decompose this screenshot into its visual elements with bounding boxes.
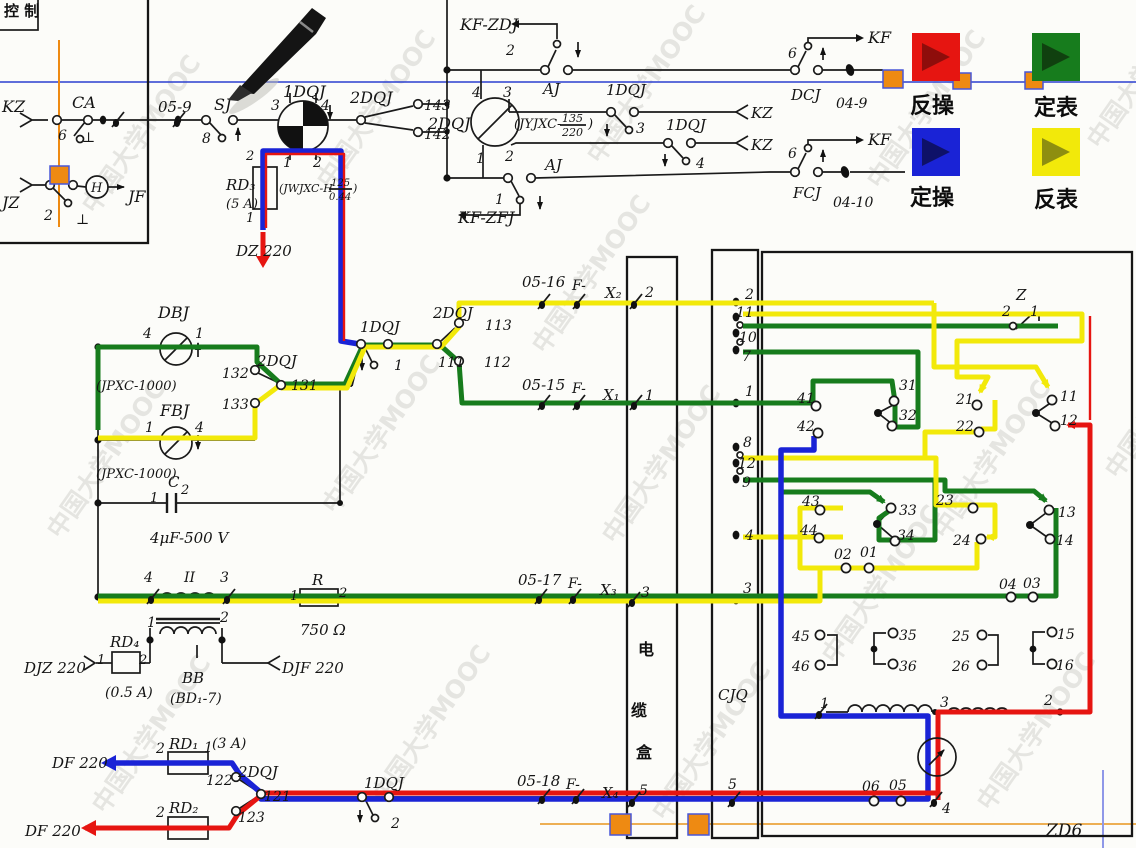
f-3-label: F-	[567, 576, 582, 592]
f-1-label: F-	[571, 278, 586, 294]
k41-label: 41	[796, 391, 815, 407]
c05-9-label: 05-9	[158, 98, 192, 116]
kz-b1-label: KZ	[750, 104, 773, 122]
kf-1-label: KF	[867, 28, 892, 47]
fcj-6-label: 6	[788, 146, 797, 162]
tr-1-label: 1	[147, 615, 156, 631]
cjq-2-label: 2	[744, 287, 754, 303]
watermark-text: 中国大学MOOC	[41, 375, 171, 544]
fbj-1-label: 1	[145, 420, 154, 436]
h-coil-label: H	[90, 181, 103, 196]
sj-8-label: 8	[202, 131, 211, 147]
watermark-text: 中国大学MOOC	[1099, 315, 1136, 484]
dbj-1-label: 1	[195, 326, 204, 342]
dqj1-model-num: 125	[331, 178, 350, 189]
zd6-label: ZD6	[1045, 821, 1082, 841]
legend-item-dingbiao: 定表	[1032, 33, 1080, 121]
dcj-label: DCJ	[790, 86, 822, 104]
rd4-1-label: 1	[97, 653, 105, 668]
k11-label: 11	[1060, 389, 1078, 405]
kz-label: KZ	[1, 97, 26, 116]
cap-c-label: C	[168, 473, 180, 491]
r-ohm-label: 750 Ω	[300, 621, 346, 639]
dqj1-b3-label: 3	[636, 121, 645, 137]
kongzhi-label: 控 制	[4, 2, 39, 20]
kz-b2-label: KZ	[750, 136, 773, 154]
k03-label: 03	[1023, 576, 1041, 592]
aj-top-label: AJ	[541, 80, 561, 98]
cjq-9-label: 9	[742, 475, 751, 491]
cjq-label: CJQ	[718, 686, 748, 704]
cjq-5-label: 5	[728, 777, 737, 793]
tr-2-label: 2	[219, 610, 229, 626]
dbj-4-label: 4	[142, 326, 152, 342]
k26-label: 26	[951, 659, 970, 675]
dqj1-model-prefix: (JWJXC-H	[279, 182, 333, 195]
k24-label: 24	[952, 533, 971, 549]
dqj1-model-post: )	[352, 182, 357, 195]
operation-legend: 反操 定表 定操 反表	[910, 33, 1080, 213]
rd3-p1-label: 1	[246, 211, 254, 226]
c05-17-label: 05-17	[518, 571, 562, 589]
cjq-8-label: 8	[743, 435, 752, 451]
dqj2-model-den: 220	[561, 126, 583, 139]
k25-label: 25	[951, 629, 970, 645]
bb-label: BB	[181, 669, 204, 687]
trace-yellow-22dn	[925, 432, 979, 458]
k42-label: 42	[796, 419, 815, 435]
rd3-label: RD₃	[225, 176, 255, 194]
dcj-6-label: 6	[788, 46, 797, 62]
cap-1-label: 1	[150, 491, 158, 506]
x3-3-label: 3	[641, 585, 650, 601]
k22-label: 22	[955, 419, 974, 435]
k06-label: 06	[862, 779, 880, 795]
orange-marker-bottom-b	[688, 814, 709, 835]
watermark-text: 中国大学MOOC	[316, 350, 446, 519]
fbj-label: FBJ	[159, 401, 191, 420]
trace-green-33a	[782, 492, 884, 502]
scanned-circuit-page: 中国大学MOOC 中国大学MOOC 中国大学MOOC 中国大学MOOC 中国大学…	[0, 0, 1136, 848]
jpxc-1-label: (JPXC-1000)	[96, 379, 177, 394]
c05-18-label: 05-18	[517, 772, 560, 790]
circuit-diagram: 中国大学MOOC 中国大学MOOC 中国大学MOOC 中国大学MOOC 中国大学…	[0, 0, 1136, 848]
rd1-2-label: 2	[155, 741, 165, 757]
tr-ii-label: II	[183, 570, 196, 586]
c05-15-label: 05-15	[522, 376, 565, 394]
n111-label: 111	[438, 355, 465, 371]
k01-label: 01	[860, 545, 878, 561]
dqj2-model-prefix: (JYJXC-	[514, 117, 561, 132]
z-label: Z	[1015, 286, 1027, 304]
n121-label: 121	[264, 789, 291, 805]
df220-r-label: DF 220	[24, 822, 81, 840]
k16-label: 16	[1056, 658, 1074, 674]
k15-label: 15	[1057, 627, 1075, 643]
k02-label: 02	[834, 547, 852, 563]
k36-label: 36	[899, 659, 917, 675]
dqj1-d1-label: 1	[394, 358, 403, 374]
fcj-label: FCJ	[792, 184, 822, 202]
dqj2-p1-label: 1	[476, 151, 485, 167]
z-2-label: 2	[1001, 304, 1011, 320]
jf-label: JF	[125, 187, 146, 206]
k05-label: 05	[889, 778, 907, 794]
trace-yellow-2122	[981, 400, 995, 429]
orange-markers	[50, 70, 1043, 835]
k46-label: 46	[791, 659, 810, 675]
n122-label: 122	[206, 773, 233, 789]
djf220-label: DJF 220	[281, 659, 344, 677]
jpxc-2-label: (JPXC-1000)	[96, 467, 177, 482]
k45-label: 45	[791, 629, 810, 645]
jz-label: JZ	[0, 193, 20, 212]
mot-3-label: 3	[940, 695, 949, 711]
rd4-a-label: (0.5 A)	[105, 685, 153, 701]
dqj1-p4-label: 4	[320, 98, 330, 114]
rd3-p2-label: 2	[245, 149, 254, 164]
cjq-11-label: 11	[736, 305, 754, 321]
rd2-2-label: 2	[155, 805, 165, 821]
mot-2-label: 2	[1043, 693, 1053, 709]
cjq-10-label: 10	[739, 330, 757, 346]
k31-label: 31	[899, 378, 917, 394]
kf-zfj-label: KF-ZFJ	[457, 208, 516, 227]
jz-2-label: 2	[43, 208, 53, 224]
kf-zdj-label: KF-ZDJ	[459, 15, 520, 34]
x2-label: X₂	[604, 284, 622, 302]
rd1-a-label: (3 A)	[212, 736, 246, 752]
n133-label: 133	[222, 397, 249, 413]
n131-label: 131	[291, 378, 318, 394]
cjq-7-label: 7	[742, 349, 751, 365]
watermark-text: 中国大学MOOC	[926, 375, 1056, 544]
r-2-label: 2	[338, 586, 347, 601]
c04-10-label: 04-10	[833, 195, 873, 211]
ca-gnd-label: ⊥	[82, 130, 95, 146]
df220-b-label: DF 220	[51, 754, 108, 772]
cjq-12-label: 12	[738, 456, 756, 472]
ca-6-label: 6	[58, 128, 67, 144]
cjq-4-label: 4	[744, 528, 754, 544]
k43-label: 43	[801, 494, 820, 510]
x1-label: X₁	[602, 386, 620, 404]
f-2-label: F-	[571, 381, 586, 397]
mot-4-label: 4	[941, 801, 951, 817]
orange-marker-049a	[883, 70, 903, 88]
dqj2-model-num: 135	[562, 112, 583, 125]
cable-2-label: 缆	[631, 701, 647, 720]
dqj2-d-label: 2DQJ	[237, 763, 279, 781]
rd2-label: RD₂	[168, 799, 198, 817]
fbj-4-label: 4	[194, 420, 204, 436]
dqj1-p1-label: 1	[283, 155, 292, 171]
z-1-label: 1	[1030, 304, 1039, 320]
k12-label: 12	[1060, 413, 1078, 429]
k34-label: 34	[897, 528, 915, 544]
n143-label: 143	[424, 98, 451, 114]
f-4-label: F-	[565, 777, 580, 793]
k32-label: 32	[899, 408, 917, 424]
legend-label-dingbiao: 定表	[1034, 95, 1079, 121]
dqj1-c4-label: 4	[695, 156, 705, 172]
dqj1-p3-label: 3	[271, 98, 280, 114]
k21-label: 21	[955, 392, 974, 408]
dqj2-p4-label: 4	[471, 85, 481, 101]
bd1-7-label: (BD₁-7)	[170, 691, 222, 707]
aj-1-label: 1	[495, 192, 504, 208]
watermark-text: 中国大学MOOC	[1081, 0, 1136, 153]
ca-label: CA	[72, 93, 96, 112]
cable-3-label: 盒	[636, 743, 653, 762]
dqj1-p2-label: 2	[312, 155, 322, 171]
dbj-label: DBJ	[157, 303, 191, 322]
legend-item-fancao: 反操	[910, 33, 960, 119]
tr-4-label: 4	[143, 570, 153, 586]
djz220-label: DJZ 220	[23, 659, 86, 677]
legend-label-fanbiao: 反表	[1034, 187, 1079, 213]
rd1-label: RD₁	[168, 735, 198, 753]
dqj1-model-den: 0.44	[329, 192, 351, 203]
dqj1-c-label: 1DQJ	[666, 116, 707, 134]
jz-gnd-label: ⊥	[76, 212, 89, 228]
cjq-1-label: 1	[745, 384, 754, 400]
cjq-3-label: 3	[743, 581, 752, 597]
n113-label: 113	[485, 318, 512, 334]
dqj2-p3-label: 3	[503, 85, 512, 101]
dqj2-p2-label: 2	[504, 149, 514, 165]
rd4-2-label: 2	[138, 653, 147, 668]
k35-label: 35	[899, 628, 917, 644]
dqj2-b-label: 2DQJ	[256, 352, 298, 370]
mot-1-label: 1	[820, 696, 829, 712]
k23-label: 23	[935, 493, 954, 509]
kf-2-label: KF	[867, 130, 892, 149]
k14-label: 14	[1056, 533, 1074, 549]
x3-label: X₃	[599, 581, 617, 599]
df220-red-arrowhead	[81, 820, 96, 836]
legend-label-dingcao: 定操	[910, 185, 955, 211]
aj-2-label: 2	[505, 43, 515, 59]
dqj2-a-label: 2DQJ	[349, 88, 394, 107]
k44-label: 44	[799, 523, 818, 539]
n112-label: 112	[484, 355, 511, 371]
tr-3-label: 3	[220, 570, 229, 586]
cap-v-label: 4μF-500 V	[149, 529, 230, 547]
x1-1-label: 1	[645, 388, 654, 404]
orange-marker-bottom-a	[610, 814, 631, 835]
dqj1-e-label: 1DQJ	[364, 774, 405, 792]
k33-label: 33	[899, 503, 917, 519]
legend-item-dingcao: 定操	[910, 128, 960, 211]
legend-item-fanbiao: 反表	[1032, 128, 1080, 213]
dqj2-model-post: )	[587, 117, 593, 132]
rd4-label: RD₄	[109, 633, 139, 651]
dz220-label: DZ 220	[235, 242, 292, 260]
n123-label: 123	[238, 810, 265, 826]
dqj2-c-label: 2DQJ	[432, 304, 474, 322]
r-1-label: 1	[290, 589, 298, 604]
k04-label: 04	[999, 577, 1017, 593]
orange-marker-left	[50, 166, 69, 184]
n132-label: 132	[222, 366, 249, 382]
c04-9-label: 04-9	[836, 96, 868, 112]
x4-5-label: 5	[639, 783, 648, 799]
x4-label: X₄	[601, 784, 619, 802]
k13-label: 13	[1058, 505, 1076, 521]
legend-label-fancao: 反操	[910, 93, 955, 119]
cap-2-label: 2	[180, 483, 189, 498]
dqj1-d-label: 1DQJ	[360, 318, 401, 336]
watermark-text: 中国大学MOOC	[971, 647, 1101, 816]
res-r-label: R	[311, 571, 323, 589]
rd3-a-label: (5 A)	[226, 197, 258, 212]
dqj2-label: 2DQJ	[427, 114, 472, 133]
dqj1-e2-label: 2	[390, 816, 400, 832]
dqj1-b-label: 1DQJ	[606, 81, 647, 99]
c05-16-label: 05-16	[522, 273, 566, 291]
cable-1-label: 电	[638, 640, 654, 659]
aj-bot-label: AJ	[543, 156, 563, 174]
x2-2-label: 2	[644, 285, 654, 301]
